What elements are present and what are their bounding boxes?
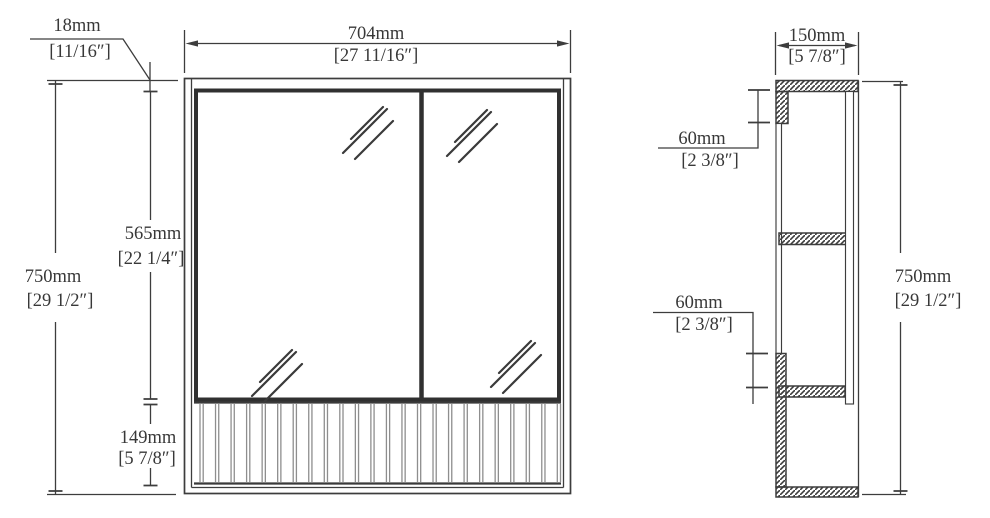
dim-565mm-inch-label: [22 1/4″]	[118, 249, 185, 269]
dimension-18mm: 18mm [11/16″]	[30, 16, 150, 91]
dim-60mm-bottom-inch-label: [2 3/8″]	[675, 315, 733, 335]
dim-150mm-inch-label: [5 7/8″]	[788, 47, 846, 67]
glass-reflection-icon	[447, 110, 497, 162]
cabinet-inner-frame	[192, 79, 564, 488]
dim-750mm-left-inch-label: [29 1/2″]	[27, 291, 94, 311]
dim-704mm-inch-label: [27 11/16″]	[334, 46, 419, 66]
mirror-door-profile	[846, 92, 854, 405]
dim-18mm-label: 18mm	[53, 16, 101, 36]
dim-565mm-label: 565mm	[125, 224, 182, 244]
slat-rack	[200, 404, 561, 482]
dim-18mm-inch-label: [11/16″]	[49, 42, 110, 62]
dimension-565mm: 565mm [22 1/4″]	[118, 91, 185, 399]
dimension-704mm: 704mm [27 11/16″]	[185, 24, 571, 73]
left-wall-top-section	[776, 92, 788, 124]
side-view	[776, 81, 859, 498]
glass-reflection-icon	[343, 107, 393, 159]
left-wall-bottom-section	[776, 354, 786, 488]
dim-149mm-label: 149mm	[120, 428, 177, 448]
dimension-60mm-bottom: 60mm [2 3/8″]	[653, 293, 768, 404]
dimension-750mm-right: 750mm [29 1/2″]	[862, 82, 961, 495]
dim-750mm-right-label: 750mm	[895, 267, 952, 287]
dim-150mm-label: 150mm	[789, 26, 846, 46]
dim-750mm-left-label: 750mm	[25, 267, 82, 287]
technical-drawing-canvas: 18mm [11/16″] 704mm [27 11/16″] 750mm [2…	[0, 0, 990, 518]
dimension-150mm: 150mm [5 7/8″]	[776, 26, 859, 75]
front-view	[185, 79, 571, 494]
top-panel-section	[776, 81, 858, 92]
dim-60mm-bottom-label: 60mm	[675, 293, 723, 313]
dim-60mm-top-inch-label: [2 3/8″]	[681, 151, 739, 171]
glass-reflection-icon	[491, 341, 541, 393]
dimension-60mm-top: 60mm [2 3/8″]	[658, 90, 770, 171]
lower-shelf-section	[779, 386, 845, 397]
cabinet-outer-frame	[185, 79, 571, 494]
dim-149mm-inch-label: [5 7/8″]	[118, 449, 176, 469]
dim-750mm-right-inch-label: [29 1/2″]	[895, 291, 962, 311]
glass-reflection-icon	[252, 350, 302, 402]
dim-704mm-label: 704mm	[348, 24, 405, 44]
middle-shelf-section	[779, 233, 846, 245]
cabinet-drawing: 18mm [11/16″] 704mm [27 11/16″] 750mm [2…	[0, 0, 990, 518]
dimension-149mm: 149mm [5 7/8″]	[118, 404, 177, 486]
dim-60mm-top-label: 60mm	[678, 129, 726, 149]
bottom-panel-section	[776, 487, 858, 497]
